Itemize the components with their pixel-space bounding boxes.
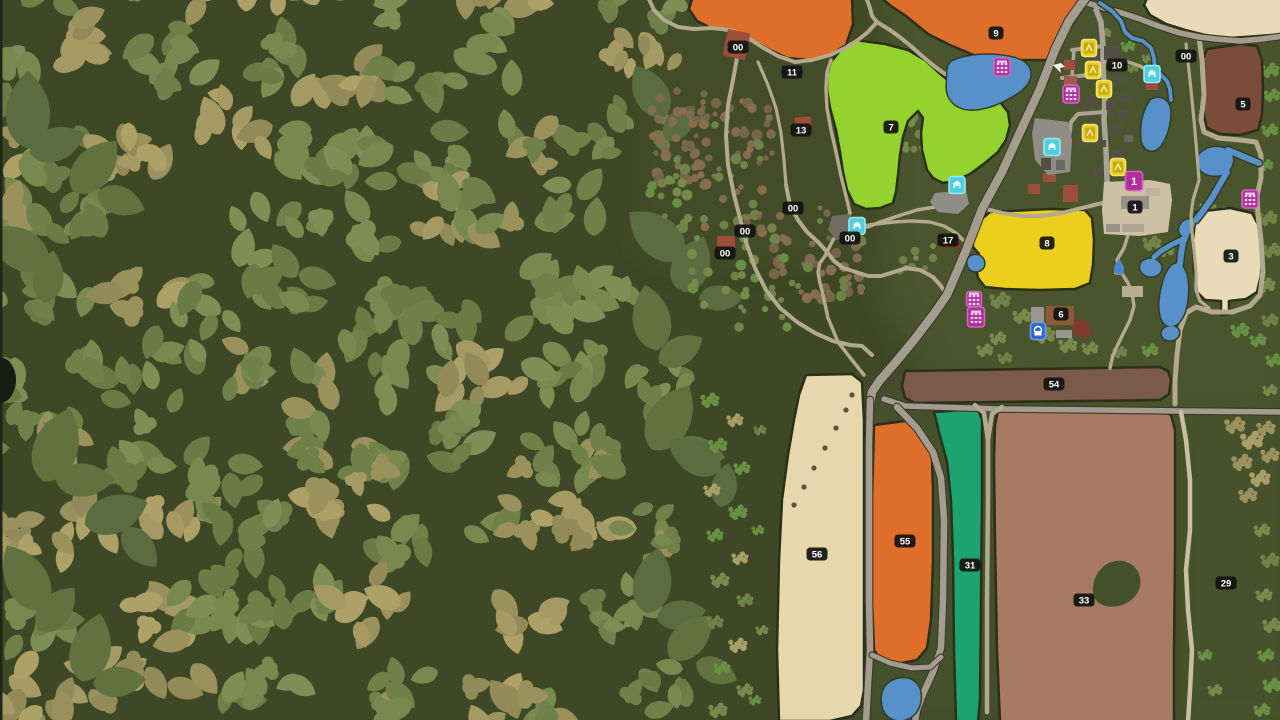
svg-text:1: 1	[1131, 176, 1137, 188]
svg-text:00: 00	[788, 204, 799, 215]
svg-text:8: 8	[1044, 239, 1049, 250]
svg-text:29: 29	[1221, 579, 1232, 590]
svg-text:55: 55	[900, 537, 911, 548]
svg-text:11: 11	[787, 68, 798, 79]
svg-text:5: 5	[1240, 100, 1246, 111]
svg-text:00: 00	[733, 43, 744, 54]
svg-text:54: 54	[1049, 380, 1060, 391]
svg-text:31: 31	[965, 561, 976, 572]
svg-text:56: 56	[812, 550, 823, 561]
svg-text:9: 9	[993, 29, 998, 40]
svg-text:17: 17	[943, 236, 954, 247]
svg-text:00: 00	[845, 234, 856, 245]
svg-text:6: 6	[1058, 310, 1063, 321]
svg-text:00: 00	[740, 227, 751, 238]
svg-text:00: 00	[720, 249, 731, 260]
svg-text:3: 3	[1228, 252, 1233, 263]
svg-text:10: 10	[1112, 61, 1123, 72]
svg-text:7: 7	[888, 123, 893, 134]
svg-text:33: 33	[1079, 596, 1090, 607]
svg-text:13: 13	[796, 126, 807, 137]
svg-text:00: 00	[1181, 52, 1192, 63]
svg-text:1: 1	[1132, 203, 1138, 214]
